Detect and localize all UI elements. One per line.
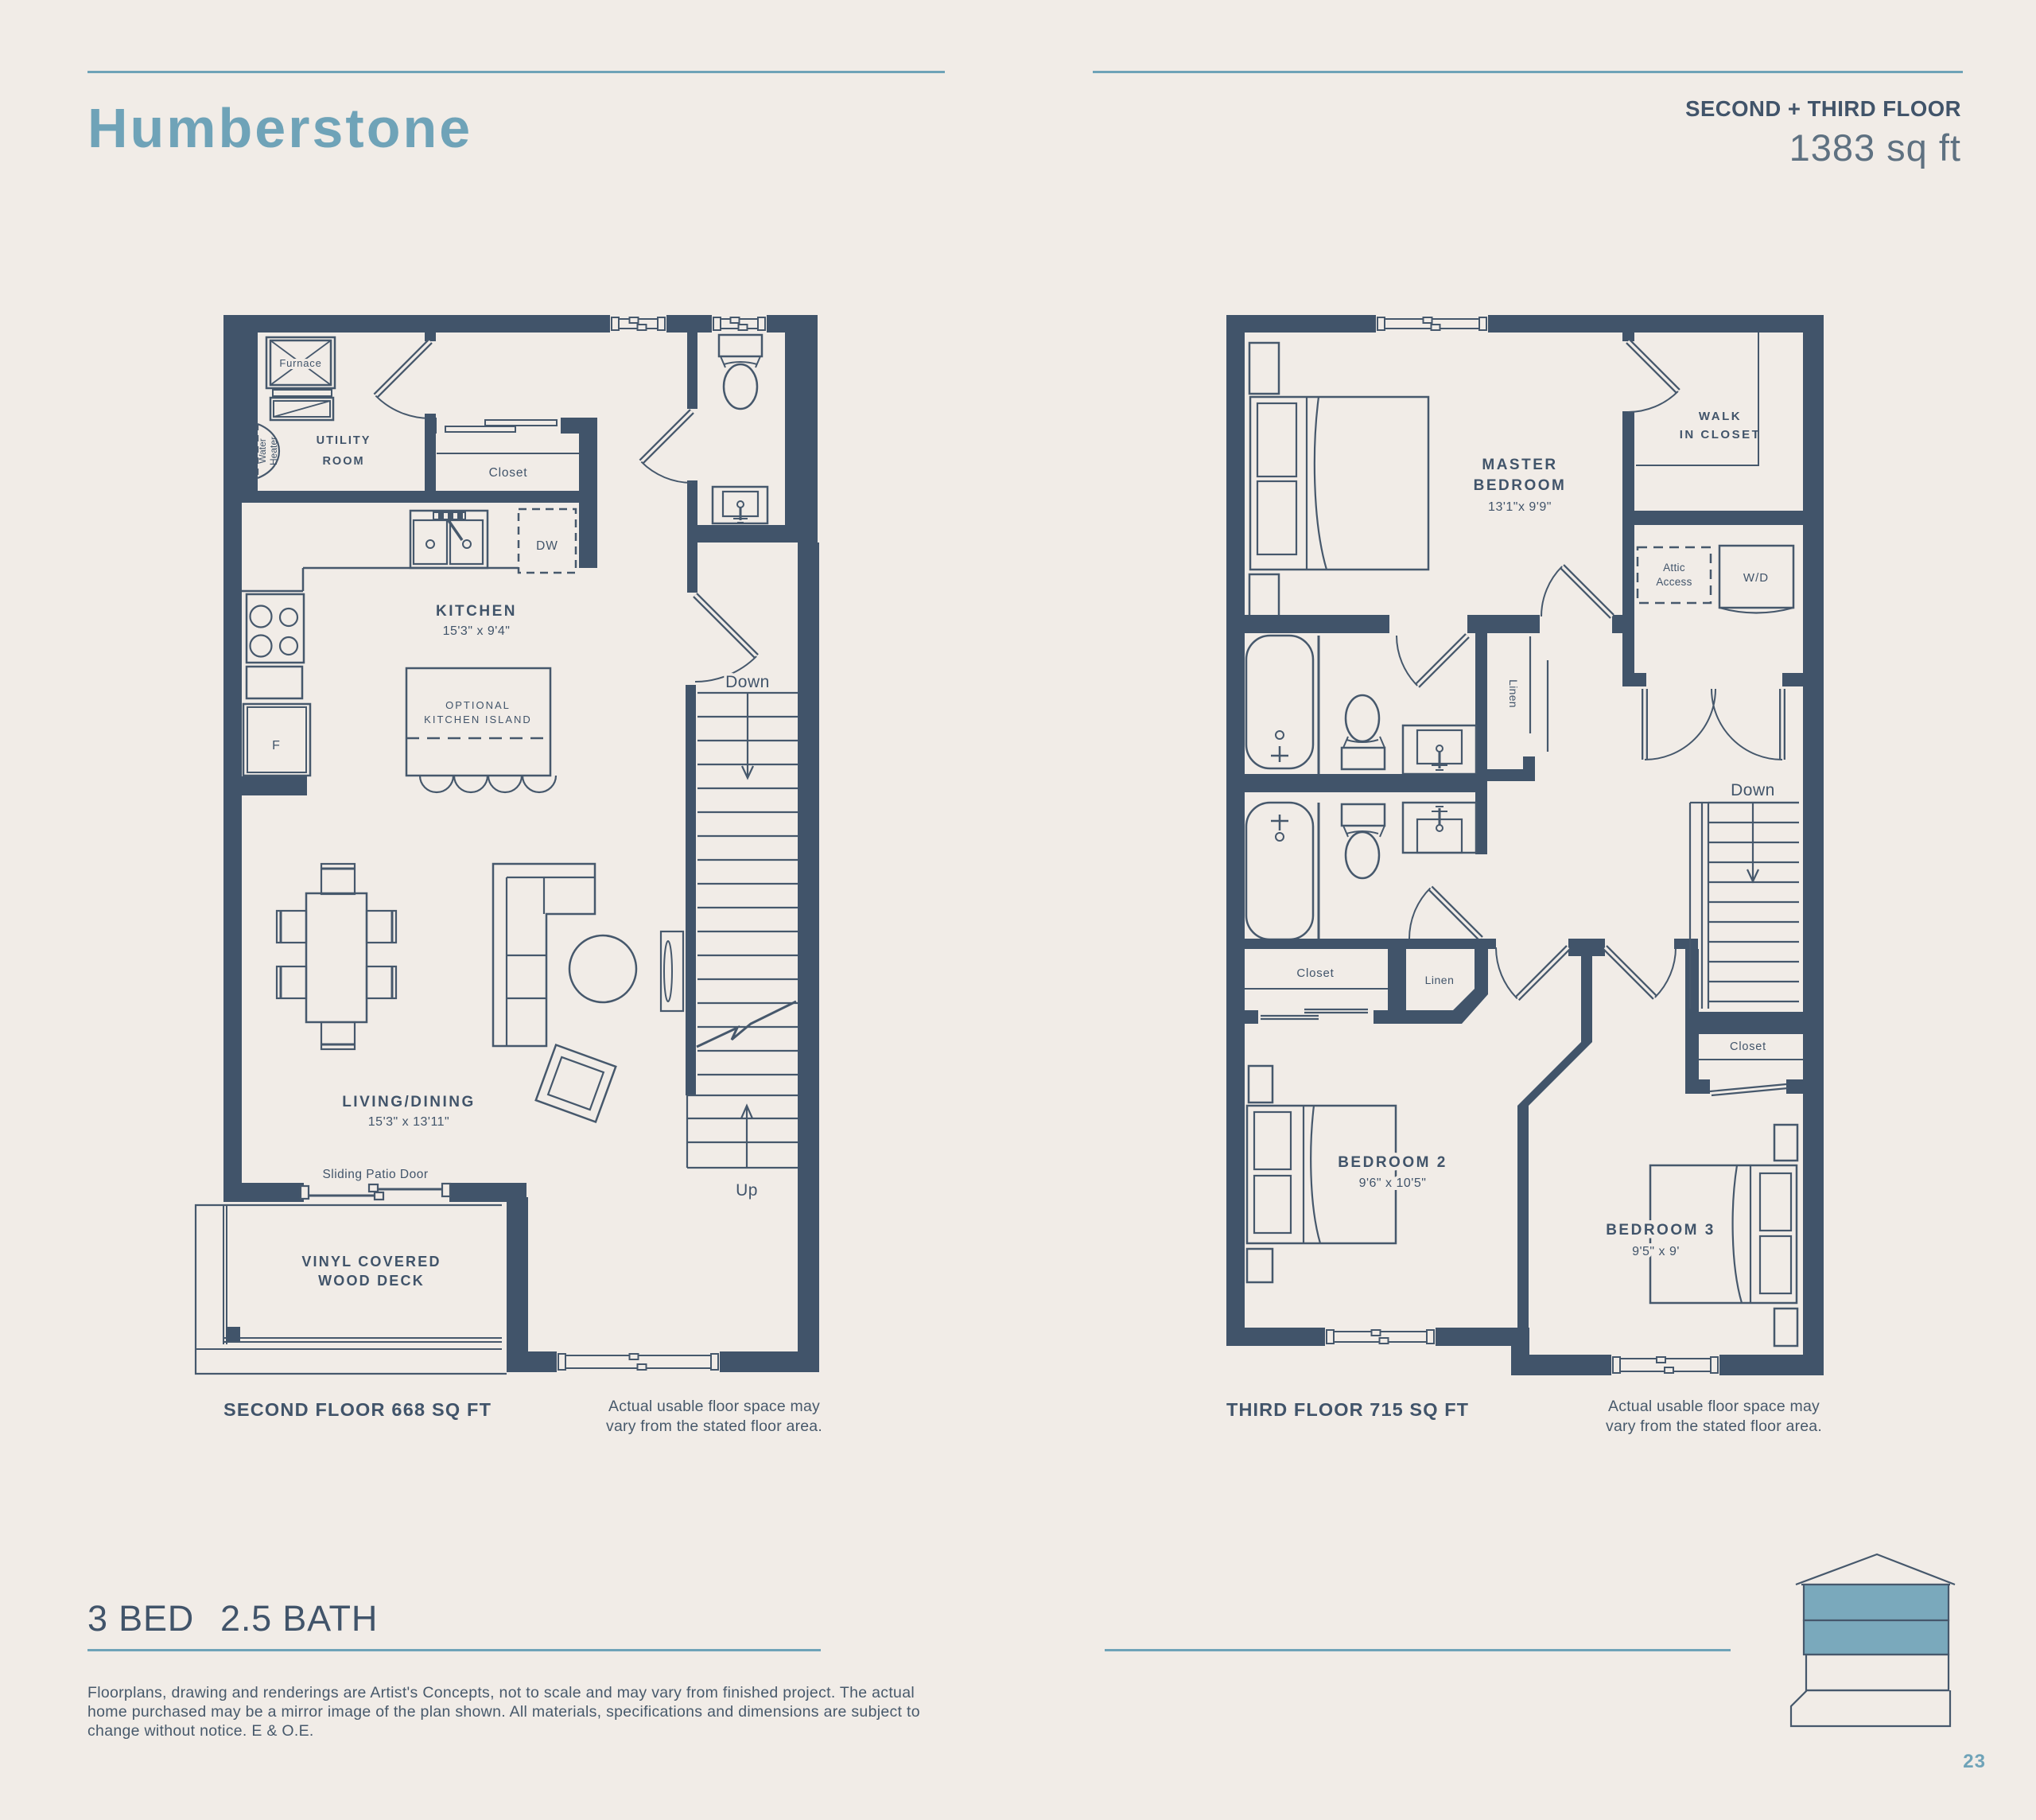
svg-text:2.5 BATH: 2.5 BATH	[220, 1598, 378, 1639]
svg-text:SECOND + THIRD FLOOR: SECOND + THIRD FLOOR	[1685, 96, 1961, 121]
svg-text:BEDROOM 3: BEDROOM 3	[1606, 1222, 1715, 1239]
svg-text:BEDROOM 2: BEDROOM 2	[1338, 1154, 1447, 1171]
svg-text:Closet: Closet	[489, 466, 528, 480]
svg-text:Water: Water	[257, 438, 268, 464]
svg-text:LIVING/DINING: LIVING/DINING	[342, 1094, 476, 1110]
svg-text:vary from the stated floor are: vary from the stated floor area.	[606, 1417, 822, 1435]
svg-text:Floorplans, drawing and render: Floorplans, drawing and renderings are A…	[87, 1684, 915, 1701]
svg-text:KITCHEN ISLAND: KITCHEN ISLAND	[424, 714, 532, 725]
svg-text:VINYL COVERED: VINYL COVERED	[301, 1254, 441, 1270]
svg-text:Up: Up	[736, 1181, 758, 1200]
svg-text:Actual usable floor space may: Actual usable floor space may	[1608, 1398, 1820, 1415]
svg-text:Closet: Closet	[1730, 1040, 1766, 1053]
svg-text:BEDROOM: BEDROOM	[1474, 477, 1567, 494]
svg-text:DW: DW	[536, 539, 558, 553]
svg-text:Sliding Patio Door: Sliding Patio Door	[322, 1168, 428, 1181]
svg-text:15'3" x 13'11": 15'3" x 13'11"	[368, 1115, 449, 1129]
svg-text:Linen: Linen	[1507, 679, 1520, 708]
svg-text:Heater: Heater	[268, 437, 279, 465]
svg-text:change without notice. E & O.E: change without notice. E & O.E.	[87, 1722, 314, 1740]
svg-text:Humberstone: Humberstone	[87, 97, 472, 159]
svg-text:THIRD FLOOR 715 SQ FT: THIRD FLOOR 715 SQ FT	[1226, 1399, 1469, 1420]
svg-text:Linen: Linen	[1425, 974, 1455, 986]
svg-text:ROOM: ROOM	[322, 455, 364, 468]
svg-text:Down: Down	[725, 673, 770, 691]
svg-text:Access: Access	[1656, 576, 1692, 588]
svg-text:3 BED: 3 BED	[87, 1598, 194, 1639]
svg-text:9'5" x 9': 9'5" x 9'	[1632, 1245, 1680, 1258]
svg-text:WALK: WALK	[1699, 410, 1742, 423]
svg-text:15'3" x 9'4": 15'3" x 9'4"	[443, 624, 511, 638]
svg-text:UTILITY: UTILITY	[317, 434, 371, 447]
svg-text:OPTIONAL: OPTIONAL	[445, 699, 511, 711]
svg-text:MASTER: MASTER	[1482, 457, 1557, 473]
svg-text:W/D: W/D	[1743, 571, 1769, 585]
svg-text:Furnace: Furnace	[279, 357, 321, 369]
svg-text:9'6" x 10'5": 9'6" x 10'5"	[1359, 1176, 1427, 1190]
svg-text:Attic: Attic	[1663, 562, 1685, 574]
svg-text:Actual usable floor space may: Actual usable floor space may	[608, 1398, 820, 1415]
svg-text:Closet: Closet	[1296, 966, 1334, 980]
svg-text:F: F	[272, 739, 280, 752]
svg-text:1383 sq ft: 1383 sq ft	[1789, 126, 1961, 169]
svg-text:23: 23	[1963, 1751, 1986, 1772]
svg-text:vary from the stated floor are: vary from the stated floor area.	[1606, 1417, 1822, 1435]
svg-text:home purchased may be a mirror: home purchased may be a mirror image of …	[87, 1703, 920, 1721]
svg-text:KITCHEN: KITCHEN	[436, 603, 517, 620]
svg-text:Down: Down	[1731, 781, 1775, 799]
svg-text:IN CLOSET: IN CLOSET	[1680, 428, 1762, 441]
svg-text:13'1"x 9'9": 13'1"x 9'9"	[1488, 500, 1552, 514]
svg-text:WOOD DECK: WOOD DECK	[318, 1273, 425, 1289]
svg-text:SECOND FLOOR 668 SQ FT: SECOND FLOOR 668 SQ FT	[223, 1399, 492, 1420]
